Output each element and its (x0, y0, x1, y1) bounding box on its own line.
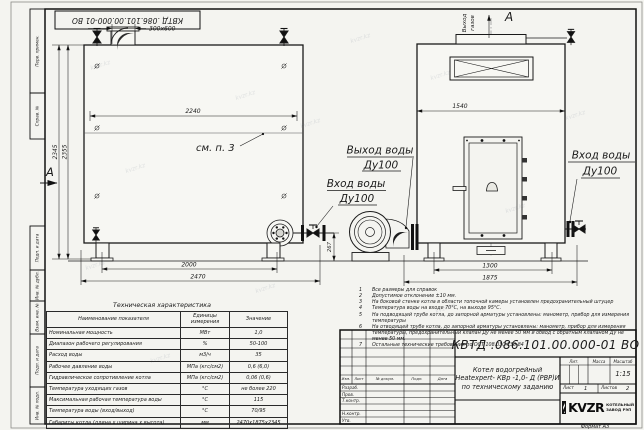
pump (267, 220, 293, 246)
sig-utv: Утв. (342, 418, 351, 423)
sheet-value: 1 (584, 386, 587, 392)
table-row: Габариты котла (длина х ширина х высота)… (47, 417, 288, 428)
dim-1540-text: 1540 (452, 103, 467, 110)
sheets-label: Листов (601, 386, 617, 391)
section-a-left: А (45, 165, 54, 179)
title-product-name: Котел водогрейный Heatexpert- КВр -1,0- … (455, 357, 560, 400)
stamp-inv-dubl: Инв. № дубл. (35, 271, 40, 300)
sheets-value: 2 (626, 386, 629, 392)
spec-col-unit: Единицы измерения (181, 312, 230, 328)
spec-table-section: Техническая характеристика Наименование … (46, 302, 278, 429)
kvzr-logo-text: KVZR (568, 400, 604, 415)
mass-label: Масса (588, 359, 610, 364)
note-item: 5 На подводящей трубе котла, до запорной… (356, 313, 638, 325)
company-logo: KVZR КОТЕЛЬНЫЙ ЗАВОД РЭП (562, 392, 634, 423)
see-note-ref: см. п. 3 (196, 143, 235, 154)
stamp-vzam-inv: Взам. инв. № (35, 303, 40, 332)
sig-nkontr: Н.контр. (342, 411, 361, 416)
drawing-sheet: Перв. примен. Справ. № Подп. и дата Инв.… (0, 0, 644, 430)
dim-2000-text: 2000 (181, 262, 196, 269)
sheet-label: Лист (563, 386, 574, 391)
top-doc-stamp: КВТД .086.101.00.000-01 ВО (55, 11, 200, 29)
rev-header-izm: Изм. (340, 377, 352, 381)
spec-col-name: Наименование показателя (47, 312, 181, 328)
sig-razrab: Разраб. (342, 385, 358, 390)
title-doc-number: КВТД .086.101.00.000-01 ВО (455, 333, 636, 356)
kvzr-logo-caption: КОТЕЛЬНЫЙ ЗАВОД РЭП (606, 403, 634, 412)
blower-fan (350, 212, 419, 262)
stamp-podp-data-2: Подп. и дата (35, 346, 40, 375)
table-row: Максимальная рабочая температура воды °С… (47, 395, 288, 406)
stamp-inv-podl: Инв. № подл. (35, 391, 40, 420)
kvzr-logo-icon (562, 401, 566, 414)
scale-label: Масштаб (610, 359, 636, 364)
note-text: На подводящей трубе котла, до запорной а… (372, 313, 638, 325)
table-row: Температура уходящих газов °С не более 2… (47, 383, 288, 394)
table-row: Номинальная мощность МВт 1,0 (47, 328, 288, 339)
spec-col-value: Значение (230, 312, 288, 328)
stamp-sprav-no: Справ. № (35, 105, 40, 126)
spec-table-title: Техническая характеристика (46, 302, 278, 309)
dim-1300-text: 1300 (482, 263, 497, 270)
lit-label: Лит. (560, 359, 588, 364)
dim-1875-text: 1875 (482, 275, 497, 282)
table-row: Диапазон рабочего регулирования % 50-100 (47, 339, 288, 350)
stamp-perv-primen: Перв. примен. (35, 35, 40, 66)
top-doc-number: КВТД .086.101.00.000-01 ВО (72, 16, 183, 25)
gas-out-label-2: газов (470, 15, 476, 31)
furnace-door (453, 137, 527, 239)
table-row: Рабочее давление воды МПа (кгс/см2) 0,6 … (47, 361, 288, 372)
note-number: 6 (356, 325, 372, 343)
product-name-line3: по техническому заданию (462, 383, 554, 392)
dim-2345: 2345 (53, 144, 59, 159)
table-row: Гидравлическое сопротивление котла МПа (… (47, 372, 288, 383)
sig-tkontr: Т.контр. (342, 398, 360, 403)
table-row: Температура воды (вход/выход) °С 70/95 (47, 406, 288, 417)
water-out-label: Выход воды (347, 145, 414, 157)
right-inlet-valve (565, 221, 586, 237)
product-name-line1: Котел водогрейный (473, 366, 542, 375)
note-number: 7 (356, 343, 372, 349)
rev-header-list: Лист (352, 377, 366, 381)
water-in-right-label: Вход воды (572, 150, 631, 162)
dim-2355: 2355 (63, 144, 69, 159)
water-in-right-dn: Ду100 (582, 166, 618, 178)
dim-duct-text: 300х600 (149, 26, 176, 33)
product-name-line2: Heatexpert- КВр -1,0- Д (РВР)И (455, 374, 559, 383)
water-in-mid-label: Вход воды (327, 178, 386, 190)
format-note: Формат А3 (545, 424, 644, 430)
rev-header-podp: Подп. (404, 377, 430, 381)
dim-2470-text: 2470 (190, 274, 205, 281)
gas-out-label-1: Выход (462, 14, 468, 33)
water-in-mid-dn: Ду100 (339, 193, 375, 205)
note-number: 5 (356, 313, 372, 325)
sig-prov: Пров. (342, 392, 354, 397)
spec-table: Наименование показателя Единицы измерени… (46, 311, 288, 429)
section-a-right: А (504, 10, 513, 24)
logo-caption-line2: ЗАВОД РЭП (606, 408, 634, 413)
dim-2240-text: 2240 (185, 108, 200, 115)
rev-header-doc: № докум. (366, 377, 404, 381)
stamp-podp-data-1: Подп. и дата (35, 233, 40, 262)
scale-value: 1:15 (610, 370, 636, 378)
table-row: Расход воды м3/ч 35 (47, 350, 288, 361)
water-out-dn: Ду100 (363, 160, 399, 172)
rev-header-data: Дата (430, 377, 455, 381)
dim-267-text: 267 (327, 241, 333, 252)
